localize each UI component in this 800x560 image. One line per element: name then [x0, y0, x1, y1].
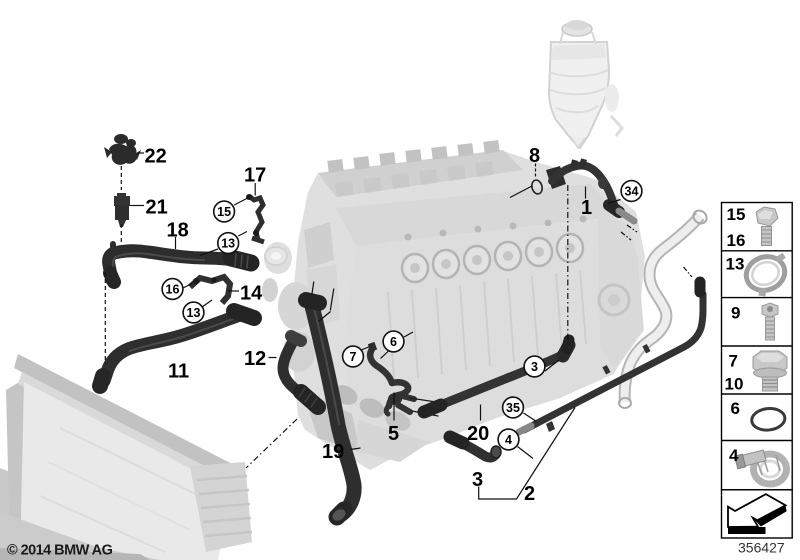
svg-text:3: 3 — [531, 360, 538, 374]
svg-text:16: 16 — [727, 231, 746, 250]
svg-text:9: 9 — [731, 304, 740, 323]
svg-text:21: 21 — [146, 197, 168, 219]
svg-text:15: 15 — [217, 205, 231, 219]
svg-text:8: 8 — [529, 145, 540, 167]
svg-text:22: 22 — [145, 146, 167, 168]
svg-text:19: 19 — [322, 441, 344, 463]
svg-text:10: 10 — [725, 375, 744, 394]
svg-text:7: 7 — [350, 350, 357, 364]
svg-text:14: 14 — [240, 283, 263, 305]
svg-text:3: 3 — [472, 469, 483, 491]
svg-text:13: 13 — [187, 306, 201, 320]
svg-text:34: 34 — [625, 185, 639, 199]
svg-text:12: 12 — [244, 348, 266, 370]
svg-text:13: 13 — [726, 255, 745, 274]
svg-text:11: 11 — [168, 361, 189, 383]
svg-text:20: 20 — [467, 423, 489, 445]
svg-text:4: 4 — [729, 446, 739, 465]
svg-text:4: 4 — [505, 433, 512, 447]
svg-text:13: 13 — [221, 237, 235, 251]
svg-text:15: 15 — [727, 205, 746, 224]
svg-text:356427: 356427 — [738, 540, 785, 556]
svg-text:18: 18 — [167, 220, 189, 242]
svg-text:1: 1 — [581, 197, 592, 219]
svg-text:7: 7 — [729, 352, 738, 371]
svg-text:5: 5 — [388, 423, 399, 445]
svg-text:© 2014 BMW AG: © 2014 BMW AG — [7, 543, 113, 559]
svg-text:16: 16 — [166, 283, 180, 297]
svg-text:17: 17 — [244, 165, 266, 187]
svg-text:6: 6 — [731, 399, 740, 418]
svg-text:2: 2 — [524, 483, 535, 505]
svg-text:35: 35 — [506, 401, 520, 415]
svg-text:6: 6 — [390, 335, 397, 349]
